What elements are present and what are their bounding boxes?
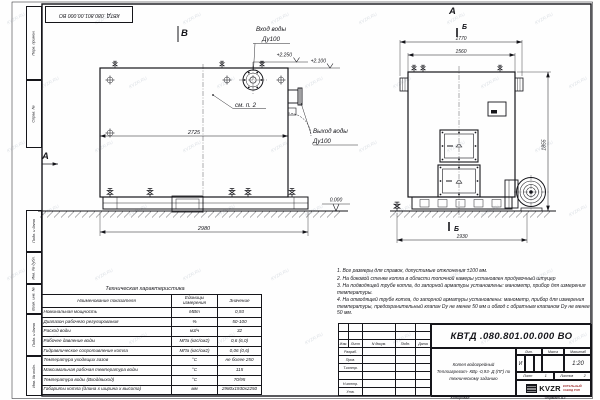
frame-column-box: Взам. инв. № [26, 284, 42, 314]
lit-value-cell: И [516, 355, 525, 372]
scale-label: Масштаб [564, 348, 592, 355]
tech-row: Гидравлическое сопротивление котлаМПа (к… [42, 346, 262, 356]
titleblock-grid-cell: Т.контр. [339, 364, 363, 372]
elevation-2250-label: +2.250 [277, 53, 293, 59]
mass-label: Масса [542, 348, 564, 355]
frame-column-box: Подп. и дата [26, 314, 42, 356]
scale-value-cell: 1:20 [564, 355, 592, 372]
product-name-line: Котел водогрейный [437, 362, 510, 369]
frame-column-label: Инв. № дубл. [32, 256, 36, 279]
mass-value-cell [542, 355, 564, 372]
tech-cell: МПа (кгс/см2) [172, 346, 218, 356]
dim-1855-label: 1855 [542, 139, 548, 150]
titleblock-grid-cell [396, 356, 416, 364]
tech-cell: Гидравлическое сопротивление котла [42, 346, 172, 356]
tech-cell: 70/95 [218, 375, 262, 385]
tech-cell: Диапазон рабочего регулирования [42, 317, 172, 327]
tech-cell: не более 250 [218, 356, 262, 366]
tech-table: Наименование показателяЕдиницы измерения… [41, 294, 262, 395]
tech-row: Температура воды (Вход/выход)°С70/95 [42, 375, 262, 385]
titleblock-grid-cell [416, 356, 431, 364]
titleblock-grid-cell [416, 348, 431, 356]
sheets-value: 2 [584, 374, 586, 378]
note-item: 4. На отводящей трубе котла, до запорной… [337, 297, 590, 317]
tech-cell: Температура уходящих газов [42, 356, 172, 366]
sheets-cell: Листов 2 [554, 372, 592, 380]
title-block: Изм.ЛистN докум.Подп.ДатаРазраб.Пров.Т.к… [338, 323, 591, 396]
tech-row: Максимальная рабочая температура воды°С1… [42, 366, 262, 376]
outlet-dn-label: Ду100 [312, 138, 331, 145]
titleblock-grid-cell [416, 380, 431, 388]
tech-cell: °С [172, 356, 218, 366]
tech-cell: Номинальная мощность [42, 308, 172, 318]
lit-empty-cell [525, 355, 534, 372]
sheets-label: Листов [560, 374, 573, 378]
titleblock-grid-cell [396, 380, 416, 388]
titleblock-grid-cell [396, 372, 416, 380]
sheet-label: Лист [523, 374, 532, 378]
tech-header: Значение [218, 295, 262, 308]
titleblock-grid-cell [396, 324, 416, 332]
view-b-label: В [181, 28, 188, 39]
tech-cell: мм [172, 385, 218, 395]
tech-row: Температура уходящих газов°Сне более 250 [42, 356, 262, 366]
company-logo-cell: KVZR КОТЕЛЬНЫЙ ЗАВОД РЭП [516, 380, 592, 397]
ground-hatching [40, 212, 550, 218]
titleblock-grid-cell: Лист [349, 340, 363, 348]
tech-cell: 0,06 (0,6) [218, 346, 262, 356]
tech-cell: Расход воды [42, 327, 172, 337]
tech-cell: Максимальная рабочая температура воды [42, 366, 172, 376]
dim-1770-label: 1770 [455, 36, 466, 42]
tech-cell: °С [172, 375, 218, 385]
tech-row: Номинальная мощностьМВт0,93 [42, 308, 262, 318]
dim-2980-label: 2980 [197, 226, 211, 232]
titleblock-grid-cell [339, 372, 363, 380]
tech-row: Расход водым3/ч32 [42, 327, 262, 337]
sheet-cell: Лист 1 [516, 372, 554, 380]
logo-subtitle-2: ЗАВОД РЭП [563, 389, 582, 392]
elevation-zero-label: 0.000 [330, 198, 343, 204]
titleblock-grid-cell: Подп. [396, 340, 416, 348]
frame-column-box: Справ. № [26, 80, 42, 148]
lit-label: Лит. [516, 348, 542, 355]
kvzr-logo-icon [526, 384, 537, 393]
note-item: 1. Все размеры для справок, допустимые о… [337, 268, 590, 275]
top-document-stamp: КВТД .080.801.00.000 ВО [45, 6, 133, 23]
frame-column-label: Перв. примен. [32, 30, 36, 55]
frame-column-label: Справ. № [32, 105, 36, 122]
tech-cell: °С [172, 366, 218, 376]
view-direction-a-label: А [41, 151, 49, 162]
titleblock-grid-cell: Разраб. [339, 348, 363, 356]
tech-cell: 32 [218, 327, 262, 337]
frame-column-label: Подп. и дата [32, 219, 36, 243]
inlet-water-label: Вход воды [256, 26, 286, 33]
titleblock-grid-cell [363, 348, 396, 356]
see-note-label: см. п. 2 [235, 102, 257, 109]
drawing-sheet: KVZR.RUKVZR.RUKVZR.RUKVZR.RUKVZR.RUKVZR.… [0, 0, 600, 400]
titleblock-grid-cell [363, 364, 396, 372]
titleblock-grid-cell: Изм. [339, 340, 349, 348]
tech-header: Наименование показателя [42, 295, 172, 308]
titleblock-grid-cell [363, 356, 396, 364]
titleblock-grid-cell [363, 388, 396, 396]
titleblock-grid-cell: N докум. [363, 340, 396, 348]
copied-by-label: Копировал [425, 396, 495, 400]
frame-column-label: Инв. № подл. [32, 364, 36, 388]
titleblock-grid-cell [349, 332, 363, 340]
document-number: КВТД .080.801.00.000 ВО [431, 324, 592, 348]
product-name-line: техническому заданию [437, 376, 510, 383]
tech-cell: % [172, 317, 218, 327]
tech-cell: Температура воды (Вход/выход) [42, 375, 172, 385]
tech-cell: м3/ч [172, 327, 218, 337]
titleblock-grid-cell [416, 372, 431, 380]
title-block-revision-grid: Изм.ЛистN докум.Подп.ДатаРазраб.Пров.Т.к… [339, 324, 431, 397]
titleblock-grid-cell [363, 332, 396, 340]
elevation-2100-label: +2.100 [311, 59, 327, 65]
frame-column-box: Инв. № подл. [26, 356, 42, 396]
sheet-value: 1 [545, 374, 547, 378]
titleblock-grid-cell [349, 324, 363, 332]
dim-1930-label: 1930 [456, 234, 467, 240]
frame-column-box: Подп. и дата [26, 210, 42, 252]
note-item: 3. На подводящей трубе котла, до запорно… [337, 283, 590, 296]
section-b-top-label: Б [462, 24, 467, 31]
tech-cell: 50-100 [218, 317, 262, 327]
top-stamp-number: КВТД .080.801.00.000 ВО [59, 12, 120, 18]
format-label: Формат А3 [520, 396, 590, 400]
titleblock-grid-cell [339, 332, 349, 340]
frame-column-label: Взам. инв. № [32, 287, 36, 310]
titleblock-grid-cell [396, 348, 416, 356]
titleblock-grid-cell [396, 332, 416, 340]
titleblock-grid-cell [396, 388, 416, 396]
titleblock-grid-cell [339, 324, 349, 332]
tech-cell: МВт [172, 308, 218, 318]
tech-cell: 0,93 [218, 308, 262, 318]
tech-cell: Габариты котла (длина х ширина х высота) [42, 385, 172, 395]
dim-1560-label: 1560 [455, 49, 466, 55]
titleblock-grid-cell [396, 364, 416, 372]
section-b-bottom-label: Б [454, 226, 459, 233]
tech-cell: МПа (кгс/см2) [172, 337, 218, 347]
frame-column-box: Перв. примен. [26, 6, 42, 80]
titleblock-grid-cell [363, 372, 396, 380]
titleblock-grid-cell: Пров. [339, 356, 363, 364]
tech-cell: Рабочее давление воды [42, 337, 172, 347]
frame-column-label: Подп. и дата [32, 323, 36, 347]
frame-column-box: Инв. № дубл. [26, 252, 42, 284]
inlet-dn-label: Ду100 [261, 36, 280, 43]
outlet-water-label: Выход воды [313, 128, 348, 135]
kvzr-logo-text: KVZR [539, 384, 561, 393]
product-name-cell: Котел водогрейныйТеплоагрегат- КВр -0,93… [431, 348, 516, 397]
tech-header: Единицы измерения [172, 295, 218, 308]
titleblock-grid-cell [416, 324, 431, 332]
titleblock-grid-cell [416, 332, 431, 340]
tech-table-title: Техническая характеристика [41, 286, 249, 292]
titleblock-grid-cell [363, 324, 396, 332]
titleblock-grid-cell: Дата [416, 340, 431, 348]
tech-row: Габариты котла (длина х ширина х высота)… [42, 385, 262, 395]
titleblock-grid-cell [416, 364, 431, 372]
tech-cell: 2980х1930х2250 [218, 385, 262, 395]
titleblock-grid-cell: Н.контр. [339, 380, 363, 388]
tech-row: Рабочее давление водыМПа (кгс/см2)0,6 (6… [42, 337, 262, 347]
note-item: 2. На боковой стенке котла в области топ… [337, 276, 590, 283]
front-view-drawing [390, 65, 556, 218]
front-view-title: А [448, 6, 456, 17]
tech-cell: 0,6 (6,0) [218, 337, 262, 347]
side-view-drawing [38, 61, 348, 214]
notes-list: 1. Все размеры для справок, допустимые о… [337, 268, 590, 318]
titleblock-grid-cell: Утв. [339, 388, 363, 396]
tech-cell: 115 [218, 366, 262, 376]
dim-2725-label: 2725 [187, 130, 201, 136]
titleblock-grid-cell [363, 380, 396, 388]
lit-empty-cell [534, 355, 542, 372]
tech-row: Диапазон рабочего регулирования%50-100 [42, 317, 262, 327]
product-name-line: Теплоагрегат- КВр -0,93- Д (ПГ) по [437, 369, 510, 376]
